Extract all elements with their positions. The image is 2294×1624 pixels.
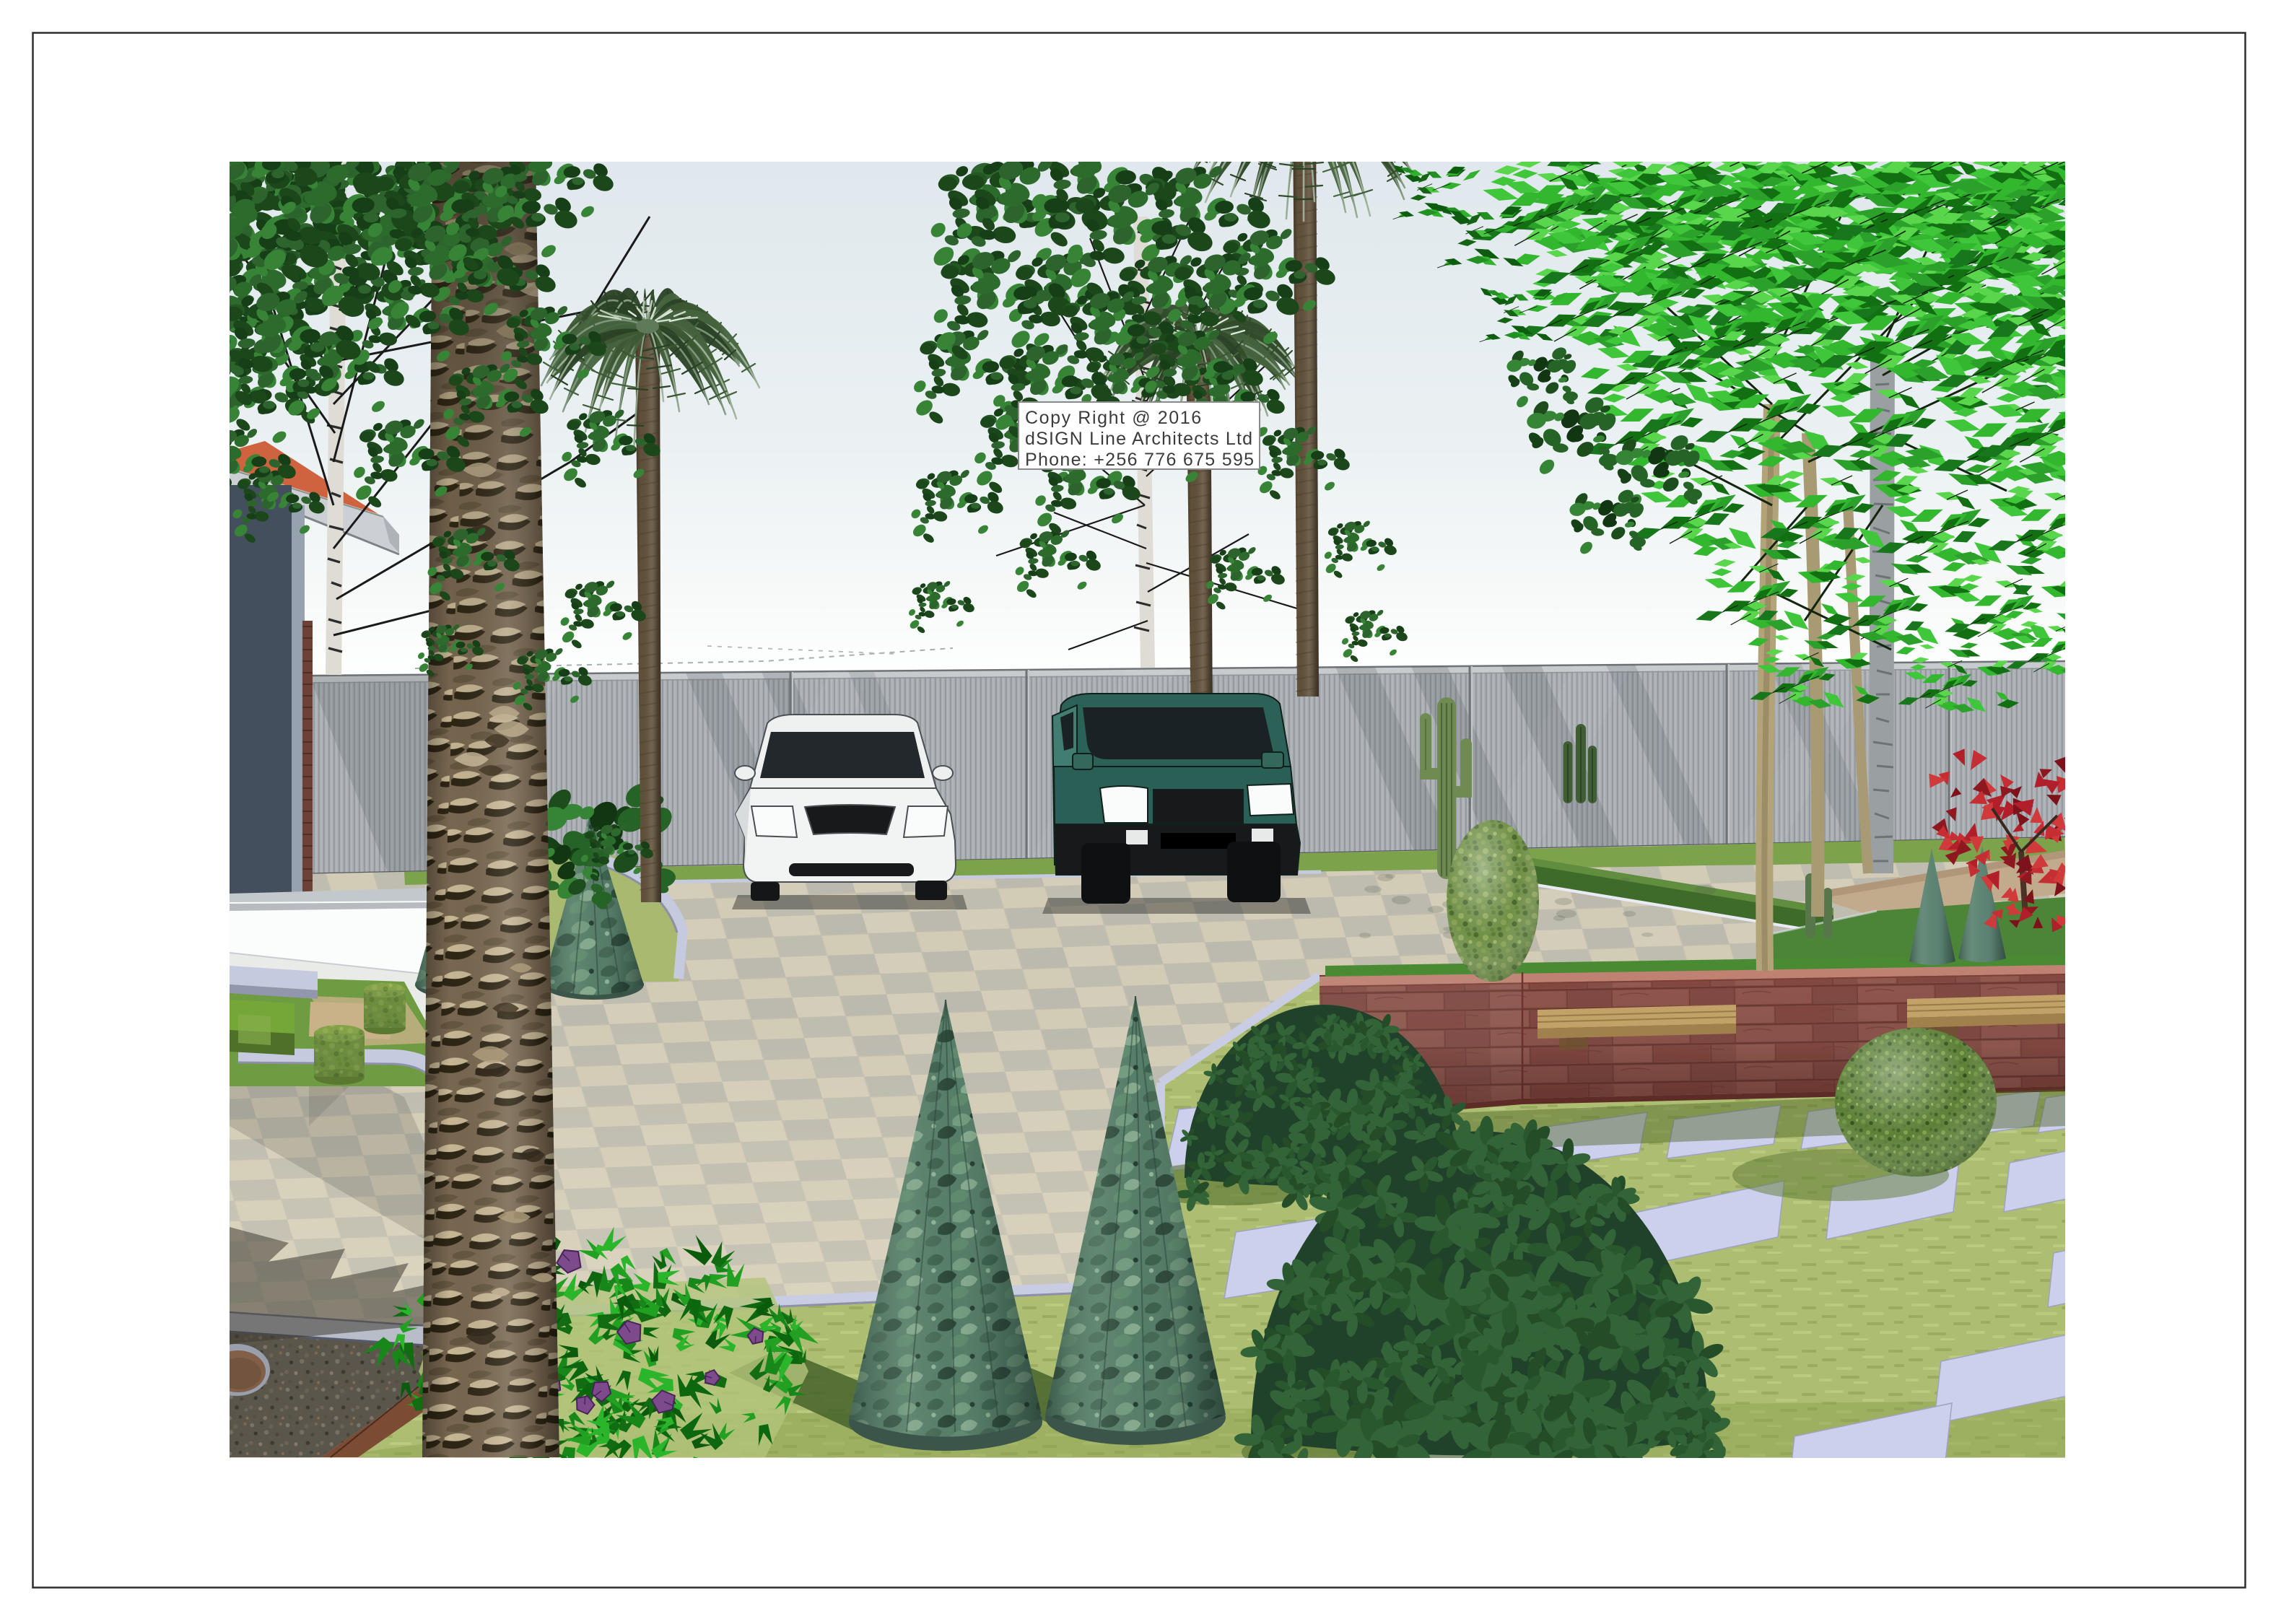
svg-text:Phone: +256 776 675 595: Phone: +256 776 675 595 bbox=[1025, 450, 1255, 470]
svg-text:Copy Right @ 2016: Copy Right @ 2016 bbox=[1025, 408, 1203, 428]
svg-text:dSIGN Line Architects Ltd: dSIGN Line Architects Ltd bbox=[1025, 429, 1253, 449]
